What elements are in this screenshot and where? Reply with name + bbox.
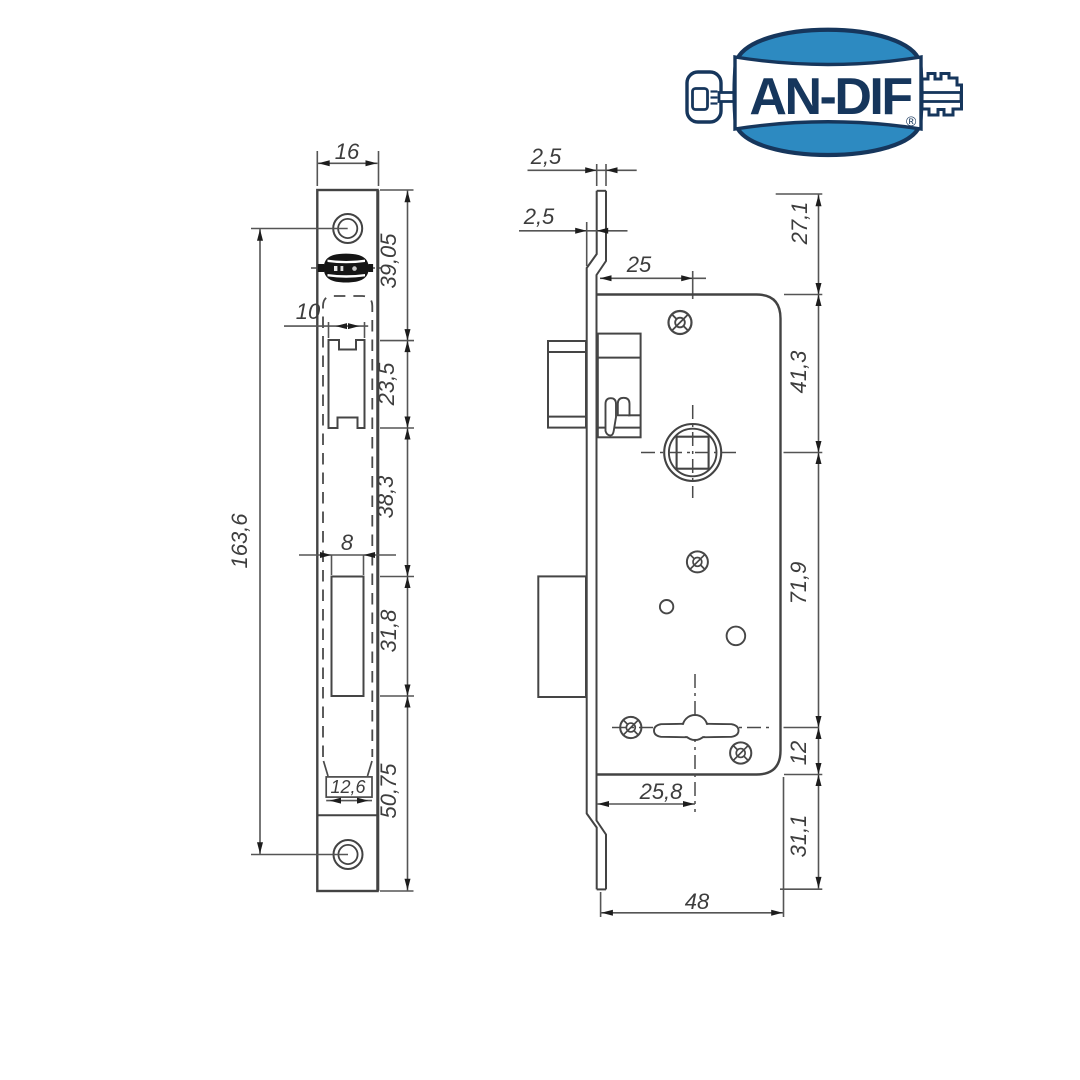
svg-text:®: ® [906, 113, 917, 129]
svg-text:39,05: 39,05 [376, 233, 401, 289]
svg-text:71,9: 71,9 [786, 562, 811, 605]
svg-text:12,6: 12,6 [330, 777, 366, 797]
svg-text:12: 12 [786, 741, 811, 765]
svg-text:10: 10 [296, 299, 321, 324]
svg-text:50,75: 50,75 [376, 763, 401, 819]
svg-text:23,5: 23,5 [374, 362, 399, 407]
svg-text:27,1: 27,1 [787, 202, 812, 246]
svg-text:25: 25 [626, 252, 652, 277]
svg-text:25,8: 25,8 [639, 779, 684, 804]
svg-text:8: 8 [341, 530, 354, 555]
svg-text:31,8: 31,8 [376, 609, 401, 653]
svg-text:2,5: 2,5 [530, 144, 562, 169]
svg-text:48: 48 [685, 889, 710, 914]
svg-text:AN-DIF: AN-DIF [749, 68, 911, 126]
svg-text:41,3: 41,3 [786, 350, 811, 394]
svg-text:38,3: 38,3 [373, 475, 398, 519]
svg-text:2,5: 2,5 [523, 204, 555, 229]
svg-text:16: 16 [335, 139, 360, 164]
svg-text:31,1: 31,1 [786, 815, 811, 858]
svg-text:163,6: 163,6 [227, 513, 252, 569]
